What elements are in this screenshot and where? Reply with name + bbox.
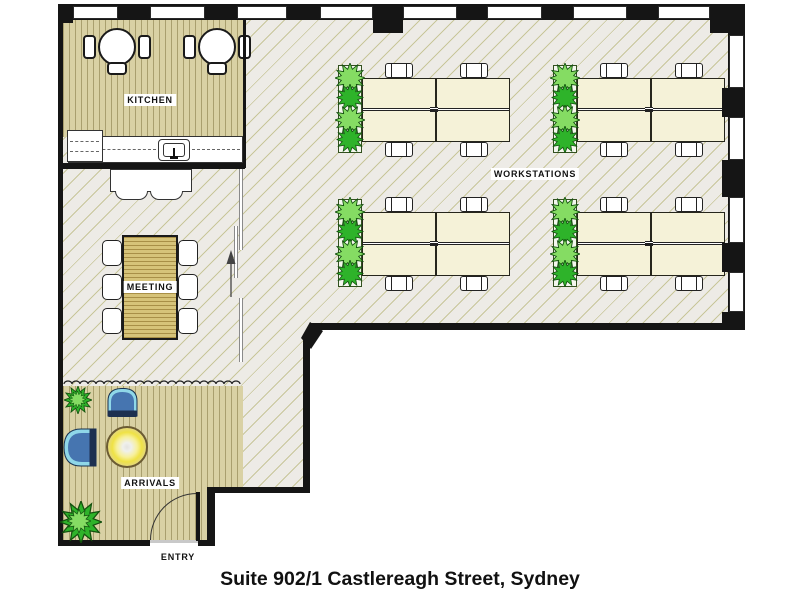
meeting-chair — [178, 240, 198, 266]
task-chair — [385, 197, 413, 212]
window — [729, 117, 744, 160]
window — [658, 6, 710, 19]
wall-bottom-west — [58, 540, 150, 546]
desk-divider — [430, 241, 438, 246]
sink-faucet-icon — [170, 156, 178, 159]
kitchen-chair — [83, 35, 96, 59]
room-label-meeting: MEETING — [124, 281, 177, 293]
fridge-centerline — [70, 151, 99, 152]
kitchen-table — [198, 28, 236, 66]
meeting-chair — [178, 274, 198, 300]
workstation-desk — [577, 110, 651, 142]
workstation-desk — [651, 78, 725, 110]
meeting-chair — [102, 274, 122, 300]
entry-threshold — [150, 540, 198, 543]
meeting-chair — [178, 308, 198, 334]
wall-kitchen-south — [58, 163, 245, 169]
workstation-desk — [362, 78, 436, 110]
meeting-console — [110, 169, 192, 192]
task-chair — [460, 63, 488, 78]
workstation-planter — [338, 199, 362, 287]
wall-left — [58, 4, 63, 546]
wall-kitchen-east — [243, 20, 246, 168]
kitchen-chair — [183, 35, 196, 59]
task-chair — [460, 142, 488, 157]
window — [150, 6, 205, 19]
workstation-desk — [362, 110, 436, 142]
glazed-partition — [239, 169, 243, 250]
window — [573, 6, 627, 19]
room-label-workstations: WORKSTATIONS — [491, 168, 579, 180]
sliding-door-panel — [234, 226, 238, 278]
window — [237, 6, 287, 19]
task-chair — [675, 63, 703, 78]
column — [710, 4, 745, 33]
window — [320, 6, 373, 19]
plan-title: Suite 902/1 Castlereagh Street, Sydney — [0, 568, 800, 591]
kitchen-fridge — [67, 130, 103, 162]
workstation-desk — [651, 212, 725, 244]
kitchen-chair — [138, 35, 151, 59]
workstation-planter — [338, 65, 362, 153]
kitchen-chair — [107, 62, 127, 75]
room-label-kitchen: KITCHEN — [124, 94, 176, 106]
column — [722, 312, 745, 330]
window — [73, 6, 118, 19]
window — [729, 197, 744, 243]
task-chair — [385, 276, 413, 291]
column — [58, 4, 73, 23]
workstation-desk — [436, 244, 510, 276]
task-chair — [385, 63, 413, 78]
window — [729, 35, 744, 88]
workstation-desk — [577, 212, 651, 244]
counter-centerline — [192, 149, 240, 150]
wall-step-vertical — [303, 337, 310, 493]
wall-workstations-south — [310, 323, 745, 330]
kitchen-table — [98, 28, 136, 66]
workstation-desk — [362, 244, 436, 276]
task-chair — [675, 276, 703, 291]
workstation-desk — [436, 110, 510, 142]
desk-divider — [645, 241, 653, 246]
desk-divider — [645, 107, 653, 112]
task-chair — [600, 63, 628, 78]
task-chair — [460, 276, 488, 291]
floor-plan: KITCHEN MEETING ARRIVALS WORKSTATIONS EN… — [0, 0, 800, 600]
window — [403, 6, 457, 19]
task-chair — [600, 276, 628, 291]
kitchen-chair — [207, 62, 227, 75]
workstation-desk — [651, 244, 725, 276]
window — [729, 272, 744, 312]
task-chair — [385, 142, 413, 157]
workstation-desk — [362, 212, 436, 244]
arrivals-lamp-table — [106, 426, 148, 468]
room-label-arrivals: ARRIVALS — [121, 477, 179, 489]
room-label-entry: ENTRY — [158, 551, 198, 563]
column — [722, 88, 745, 117]
task-chair — [460, 197, 488, 212]
column — [722, 243, 745, 272]
task-chair — [600, 142, 628, 157]
meeting-chair — [102, 240, 122, 266]
task-chair — [600, 197, 628, 212]
workstation-desk — [577, 78, 651, 110]
desk-divider — [430, 107, 438, 112]
workstation-desk — [436, 212, 510, 244]
workstation-desk — [577, 244, 651, 276]
column — [722, 160, 745, 197]
workstation-planter — [553, 199, 577, 287]
entry-door-leaf — [196, 492, 200, 541]
console-chair — [115, 191, 148, 200]
task-chair — [675, 142, 703, 157]
workstation-desk — [651, 110, 725, 142]
arrivals-floor — [63, 386, 243, 540]
console-chair — [150, 191, 183, 200]
wall-corridor-south — [207, 487, 310, 493]
workstation-planter — [553, 65, 577, 153]
fridge-centerline — [70, 141, 99, 142]
window — [487, 6, 542, 19]
column — [373, 4, 403, 33]
meeting-chair — [102, 308, 122, 334]
glazed-partition — [239, 298, 243, 362]
task-chair — [675, 197, 703, 212]
workstation-desk — [436, 78, 510, 110]
wall-entry-jamb — [207, 487, 215, 546]
wall-bottom-east — [198, 540, 215, 546]
